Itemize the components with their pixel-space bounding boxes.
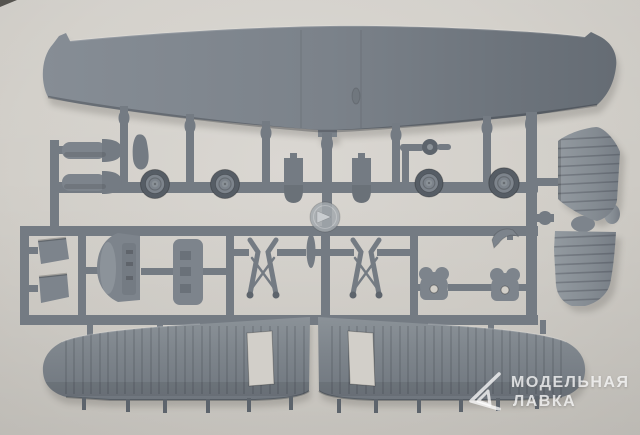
main-wheel-3 bbox=[415, 169, 443, 197]
interior-panel-part bbox=[173, 239, 203, 305]
right-runner bbox=[526, 112, 537, 325]
hatch-part-2 bbox=[352, 153, 371, 203]
wheel-cover-part-1 bbox=[419, 267, 449, 300]
landing-gear-strut-1 bbox=[247, 240, 280, 299]
fuel-tank-part-1 bbox=[62, 139, 122, 162]
wheel-cover-part-2 bbox=[490, 268, 520, 301]
lower-wing-left bbox=[43, 317, 313, 413]
cowl-flap-part-2 bbox=[39, 274, 69, 303]
engine-cowling-part bbox=[97, 233, 140, 302]
sprue-frame bbox=[20, 106, 558, 336]
main-wheel-4 bbox=[489, 168, 519, 198]
sprue-photo: МОДЕЛЬНАЯ ЛАВКА bbox=[0, 0, 640, 435]
landing-gear-strut-2 bbox=[350, 240, 383, 299]
sprue-hub-disc bbox=[310, 202, 340, 232]
main-wheel-1 bbox=[141, 170, 170, 199]
lattice-top-rail bbox=[20, 226, 538, 236]
cowl-flap-part-1 bbox=[38, 238, 69, 264]
wing-cutout-right bbox=[348, 331, 375, 386]
lower-wing-right bbox=[318, 317, 588, 413]
hatch-part-1 bbox=[284, 153, 303, 203]
blade-part bbox=[307, 234, 316, 268]
wing-cutout-left bbox=[247, 331, 274, 386]
sprue-scene bbox=[0, 0, 640, 435]
teardrop-fairing-part bbox=[133, 134, 149, 169]
main-wheel-2 bbox=[211, 170, 240, 199]
fuel-tank-part-2 bbox=[62, 171, 122, 194]
corner-shadow bbox=[0, 0, 17, 7]
wing-filler-bump bbox=[352, 88, 360, 104]
